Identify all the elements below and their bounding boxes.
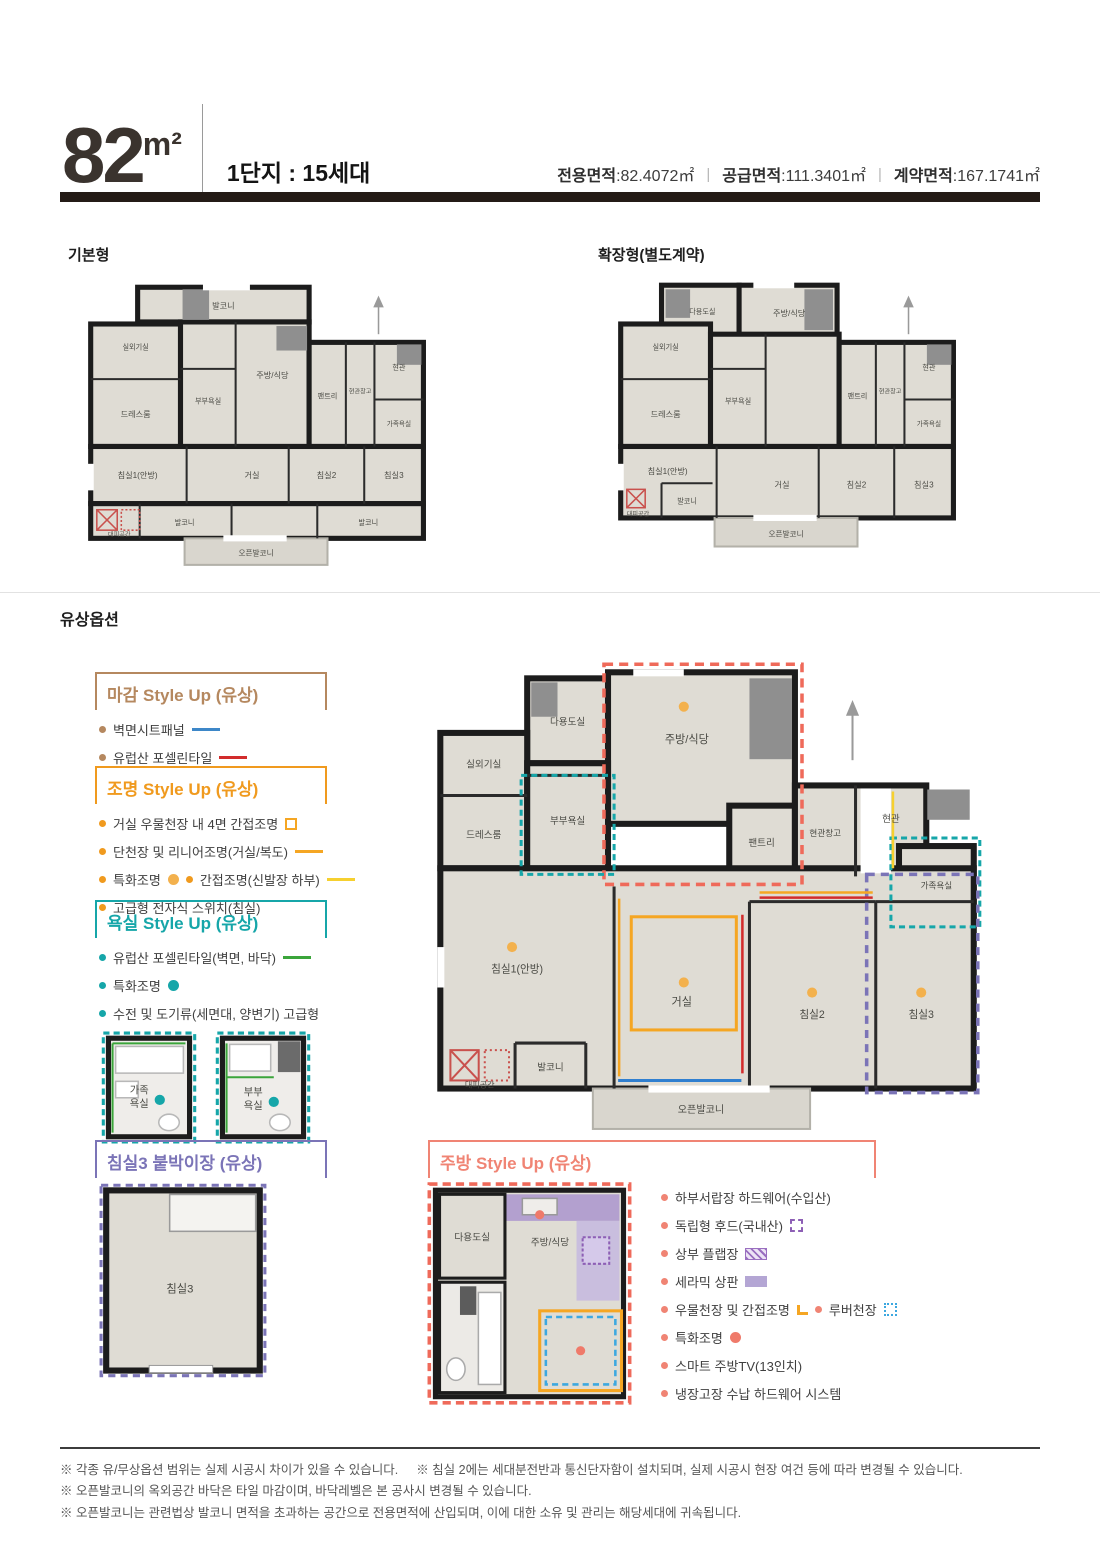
bullet-icon <box>661 1362 668 1369</box>
room-label: 욕실 <box>244 1100 263 1112</box>
brochure-page: 82m² 1단지 : 15세대 전용면적:82.4072㎡ | 공급면적:111… <box>0 0 1100 1564</box>
room-label: 침실3 <box>384 470 404 480</box>
room-label: 가족욕실 <box>387 419 411 428</box>
room-label: 오픈발코니 <box>678 1104 724 1116</box>
legend-swatch-blue-line <box>192 728 220 731</box>
area-summary: 전용면적:82.4072㎡ | 공급면적:111.3401㎡ | 계약면적:16… <box>557 162 1040 192</box>
bullet-icon <box>99 726 106 733</box>
room-label: 드레스룸 <box>651 410 682 419</box>
legend-swatch-purple-dashed <box>790 1219 803 1232</box>
room-label: 부부욕실 <box>550 816 585 827</box>
room-label: 현관창고 <box>879 387 902 395</box>
unit-size-unit: m² <box>143 126 182 162</box>
unit-size-number: 82 <box>62 111 143 199</box>
room-label: 현관 <box>392 363 406 372</box>
bullet-icon <box>99 754 106 761</box>
bullet-icon <box>661 1222 668 1229</box>
room-label: 침실3 <box>166 1283 193 1296</box>
bath-style-up-title: 욕실 Style Up (유상) <box>95 900 327 938</box>
bullet-icon <box>99 982 106 989</box>
room-label: 가족욕실 <box>921 880 953 890</box>
room-label: 다용도실 <box>550 717 585 728</box>
legend-item: 벽면시트패널 <box>99 720 327 739</box>
room-label: 발코니 <box>175 518 195 527</box>
legend-swatch-teal-dot <box>168 980 179 991</box>
room-label: 팬트리 <box>748 838 774 849</box>
room-label: 주방/식당 <box>256 370 289 380</box>
area-exclusive: 전용면적:82.4072㎡ <box>557 162 694 186</box>
bullet-icon <box>99 848 106 855</box>
footer-bar <box>60 1447 1040 1449</box>
kitchen-style-up-title: 주방 Style Up (유상) <box>428 1140 876 1178</box>
feature-light-dot <box>535 1210 544 1219</box>
room-label: 실외기실 <box>652 343 678 352</box>
basic-plan-svg: 발코니 실외기실 드레스룸 부부욕실 주방/식당 팬트리 현관창고 현관 가족욕… <box>68 275 440 571</box>
area-contract: 계약면적:167.1741㎡ <box>894 162 1040 186</box>
room-label: 주방/식당 <box>665 733 709 746</box>
room-label: 가족 <box>130 1085 149 1097</box>
complex-units: 1단지 : 15세대 <box>227 154 370 192</box>
room-label: 현관 <box>882 814 900 825</box>
entry-arrow-icon <box>847 703 857 761</box>
legend-swatch-red-line <box>219 756 247 759</box>
room-label: 팬트리 <box>848 392 868 401</box>
footnote-row: ※ 오픈발코니의 옥외공간 바닥은 타일 마감이며, 바닥레벨은 본 공사시 변… <box>60 1481 1050 1502</box>
room-label: 거실 <box>244 470 259 480</box>
bedroom3-plan-svg: 침실3 <box>98 1182 270 1382</box>
room-label: 대피공간 <box>465 1080 495 1090</box>
room-label: 침실2 <box>847 479 867 489</box>
extended-plan-title: 확장형(별도계약) <box>598 244 970 265</box>
room-label: 발코니 <box>212 301 235 311</box>
master-bath-svg: 부부 욕실 <box>214 1030 312 1145</box>
bullet-icon <box>815 1306 822 1313</box>
bath-style-up-box: 욕실 Style Up (유상) 유럽산 포셀린타일(벽면, 바닥) 특화조명 … <box>95 900 327 1032</box>
extended-plan-svg: 다용도실 실외기실 드레스룸 부부욕실 주방/식당 팬트리 현관창고 현관 가족… <box>598 275 970 571</box>
header-divider <box>202 104 203 192</box>
unit-size: 82m² <box>62 118 182 192</box>
room-label: 침실2 <box>799 1009 824 1021</box>
room-label: 부부 <box>244 1088 263 1099</box>
room-label: 거실 <box>672 996 692 1009</box>
bullet-icon <box>661 1250 668 1257</box>
room-label: 다용도실 <box>454 1231 490 1243</box>
option-plan-svg: 다용도실 실외기실 드레스룸 부부욕실 주방/식당 팬트리 현관창고 현관 가족… <box>414 644 994 1134</box>
basic-plan-title: 기본형 <box>68 244 440 265</box>
footnotes: ※ 각종 유/무상옵션 범위는 실제 시공시 차이가 있을 수 있습니다.※ 침… <box>60 1460 1050 1524</box>
room-label: 실외기실 <box>466 758 501 770</box>
legend-item: 유럽산 포셀린타일(벽면, 바닥) <box>99 948 327 967</box>
bullet-icon <box>661 1390 668 1397</box>
room-label: 대피공간 <box>108 530 131 538</box>
feature-light-dot <box>269 1097 279 1107</box>
legend-item: 유럽산 포셀린타일 <box>99 748 327 767</box>
legend-swatch-purple-hatch <box>745 1248 767 1260</box>
legend-swatch-orange-dot <box>168 874 179 885</box>
legend-item: 거실 우물천장 내 4면 간접조명 <box>99 814 327 833</box>
legend-item: 특화조명간접조명(신발장 하부) <box>99 870 327 889</box>
bullet-icon <box>99 876 106 883</box>
legend-item: 우물천장 및 간접조명루버천장 <box>661 1300 897 1319</box>
bedroom3-closet-title: 침실3 붙박이장 (유상) <box>95 1140 327 1178</box>
room-label: 가족욕실 <box>917 419 941 428</box>
legend-item: 수전 및 도기류(세면대, 양변기) 고급형 <box>99 1004 327 1023</box>
legend-item: 독립형 후드(국내산) <box>661 1216 897 1235</box>
room-label: 현관창고 <box>809 828 841 838</box>
bathroom-diagrams: 가족 욕실 부부 욕실 <box>100 1030 312 1145</box>
legend-swatch-orange-bracket <box>797 1305 808 1315</box>
legend-item: 냉장고장 수납 하드웨어 시스템 <box>661 1384 897 1403</box>
kitchen-style-up-box: 주방 Style Up (유상) <box>428 1140 876 1178</box>
room-label: 드레스룸 <box>121 410 152 419</box>
option-main-plan: 다용도실 실외기실 드레스룸 부부욕실 주방/식당 팬트리 현관창고 현관 가족… <box>414 644 994 1139</box>
legend-swatch-lavender <box>745 1276 767 1287</box>
header: 82m² 1단지 : 15세대 전용면적:82.4072㎡ | 공급면적:111… <box>62 92 1040 192</box>
room-label: 실외기실 <box>122 343 148 352</box>
bullet-icon <box>99 1010 106 1017</box>
room-label: 오픈발코니 <box>768 528 803 538</box>
legend-item: 상부 플랩장 <box>661 1244 897 1263</box>
room-label: 다용도실 <box>689 307 715 316</box>
room-label: 거실 <box>774 479 789 489</box>
family-bath-svg: 가족 욕실 <box>100 1030 198 1145</box>
room-label: 오픈발코니 <box>238 548 273 558</box>
legend-swatch-blue-dotted <box>884 1303 897 1316</box>
area-supply: 공급면적:111.3401㎡ <box>722 162 866 186</box>
feature-light-dot <box>155 1095 165 1105</box>
footnote-row: ※ 오픈발코니는 관련법상 발코니 면적을 초과하는 공간으로 전용면적에 산입… <box>60 1503 1050 1524</box>
room-label: 주방/식당 <box>531 1236 569 1248</box>
header-bar <box>60 192 1040 202</box>
section-divider <box>0 592 1100 593</box>
legend-item: 특화조명 <box>661 1328 897 1347</box>
bullet-icon <box>99 820 106 827</box>
room-label: 대피공간 <box>627 510 650 518</box>
room-label: 침실3 <box>914 479 934 489</box>
hood-option-marker <box>583 1237 610 1264</box>
bullet-icon <box>186 876 193 883</box>
basic-plan-block: 기본형 <box>68 244 440 576</box>
legend-swatch-green-line <box>283 956 311 959</box>
bullet-icon <box>661 1194 668 1201</box>
bedroom3-diagram: 침실3 <box>98 1182 270 1387</box>
kitchen-legend: 하부서랍장 하드웨어(수입산) 독립형 후드(국내산) 상부 플랩장 세라믹 상… <box>661 1180 897 1412</box>
legend-swatch-yellow-line <box>327 878 355 881</box>
room-label: 발코니 <box>537 1062 563 1073</box>
paid-options-title: 유상옵션 <box>60 606 119 630</box>
footnote-row: ※ 각종 유/무상옵션 범위는 실제 시공시 차이가 있을 수 있습니다.※ 침… <box>60 1460 1050 1481</box>
bullet-icon <box>99 954 106 961</box>
finish-style-up-box: 마감 Style Up (유상) 벽면시트패널 유럽산 포셀린타일 <box>95 672 327 776</box>
legend-swatch-orange-line <box>295 850 323 853</box>
room-label: 팬트리 <box>318 392 338 401</box>
finish-style-up-title: 마감 Style Up (유상) <box>95 672 327 710</box>
room-label: 드레스룸 <box>466 830 501 841</box>
feature-light-dot <box>576 1346 585 1355</box>
room-label: 주방/식당 <box>773 308 806 318</box>
extended-plan-block: 확장형(별도계약) <box>598 244 970 576</box>
legend-item: 단천장 및 리니어조명(거실/복도) <box>99 842 327 861</box>
entry-arrow-icon <box>904 297 912 334</box>
room-label: 침실1(안방) <box>491 963 543 975</box>
legend-item: 스마트 주방TV(13인치) <box>661 1356 897 1375</box>
room-label: 침실3 <box>909 1009 934 1021</box>
room-label: 부부욕실 <box>195 397 221 406</box>
room-label: 현관창고 <box>349 387 372 395</box>
legend-item: 특화조명 <box>99 976 327 995</box>
lighting-style-up-title: 조명 Style Up (유상) <box>95 766 327 804</box>
room-label: 침실1(안방) <box>648 466 688 476</box>
kitchen-style-up-content: 다용도실 주방/식당 하부서랍장 하드웨어(수입산) 독립형 후드(국내산) 상… <box>425 1180 897 1412</box>
legend-swatch-orange-square <box>285 818 297 830</box>
legend-item: 세라믹 상판 <box>661 1272 897 1291</box>
room-label: 발코니 <box>677 497 697 506</box>
kitchen-plan-svg: 다용도실 주방/식당 <box>425 1180 635 1410</box>
bullet-icon <box>661 1278 668 1285</box>
legend-swatch-salmon-dot <box>730 1332 741 1343</box>
room-label: 침실2 <box>317 470 337 480</box>
bullet-icon <box>661 1334 668 1341</box>
room-label: 욕실 <box>130 1098 149 1110</box>
separator: | <box>878 166 882 183</box>
entry-arrow-icon <box>374 297 382 334</box>
room-label: 현관 <box>922 363 936 372</box>
bedroom3-closet-box: 침실3 붙박이장 (유상) <box>95 1140 327 1178</box>
room-label: 부부욕실 <box>725 397 751 406</box>
separator: | <box>706 166 710 183</box>
room-label: 발코니 <box>358 518 378 527</box>
legend-item: 하부서랍장 하드웨어(수입산) <box>661 1188 897 1207</box>
bullet-icon <box>661 1306 668 1313</box>
room-label: 침실1(안방) <box>118 470 158 480</box>
